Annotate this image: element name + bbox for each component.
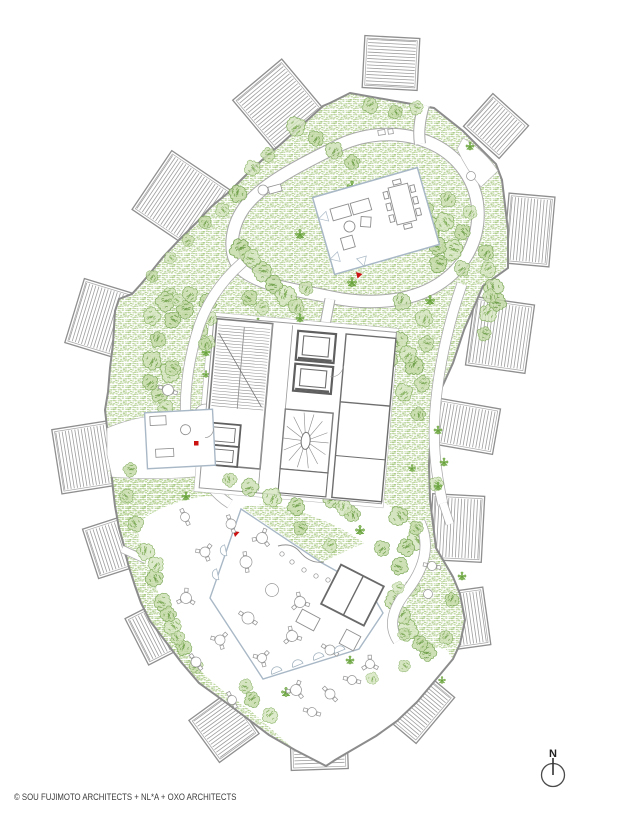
- svg-text:N: N: [549, 748, 557, 760]
